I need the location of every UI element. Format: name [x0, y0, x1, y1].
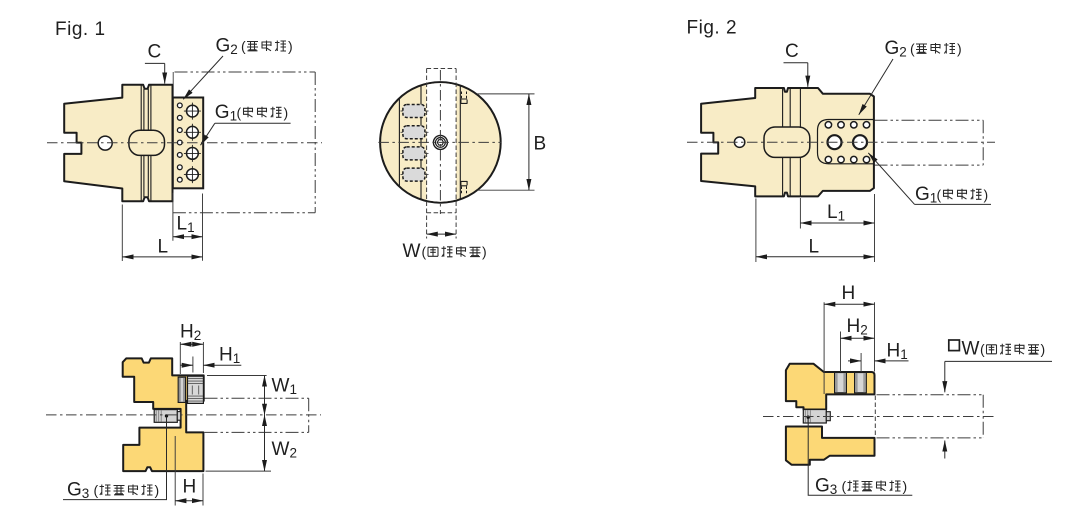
svg-text:(: (	[910, 41, 915, 57]
svg-text:C: C	[148, 42, 162, 63]
svg-text:H: H	[183, 477, 197, 498]
svg-text:): )	[903, 478, 908, 494]
svg-text:(: (	[937, 186, 942, 202]
svg-text:(: (	[241, 38, 246, 54]
svg-text:C: C	[785, 41, 799, 62]
svg-text:B: B	[534, 134, 547, 155]
svg-text:): )	[984, 186, 989, 202]
svg-text:(: (	[94, 482, 99, 498]
svg-text:): )	[284, 104, 289, 120]
svg-text:): )	[957, 41, 962, 57]
svg-text:L: L	[158, 237, 169, 258]
svg-text:W: W	[962, 339, 980, 360]
svg-text:(: (	[842, 478, 847, 494]
svg-text:): )	[482, 244, 487, 260]
svg-text:H: H	[842, 283, 856, 304]
svg-text:Fig. 2: Fig. 2	[687, 18, 738, 39]
svg-text:): )	[155, 482, 160, 498]
svg-text:(: (	[980, 341, 985, 357]
svg-text:W: W	[403, 241, 421, 262]
svg-text:Fig. 1: Fig. 1	[55, 19, 106, 40]
svg-text:(: (	[422, 244, 427, 260]
svg-text:(: (	[237, 104, 242, 120]
svg-text:L: L	[809, 237, 820, 258]
svg-text:): )	[1041, 341, 1046, 357]
svg-text:): )	[288, 38, 293, 54]
